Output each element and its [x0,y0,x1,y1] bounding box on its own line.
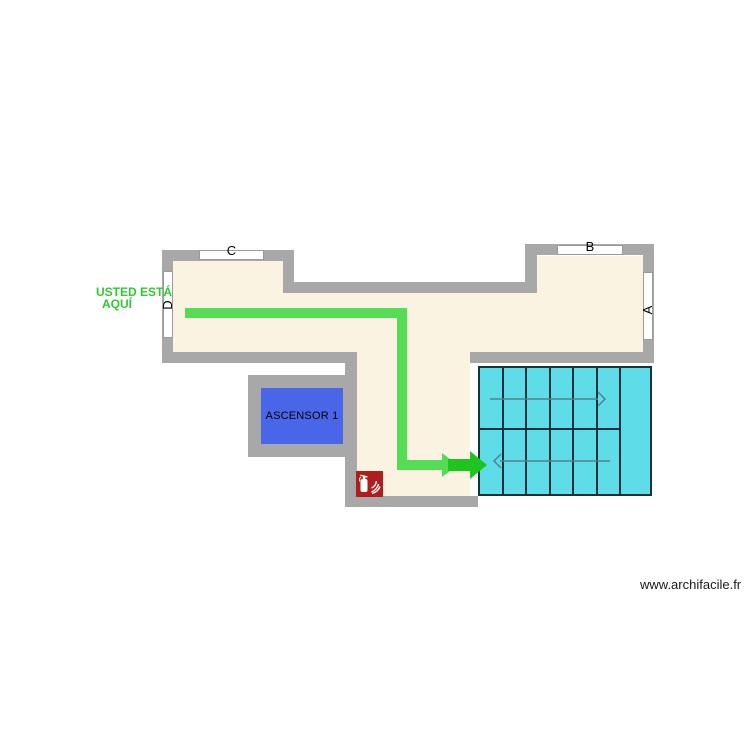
arrow-right-head-icon [598,392,605,406]
arrow-right-solid-head-icon [470,451,487,479]
floor-main-hall [173,293,643,352]
wall-corridor-bottom [345,496,478,507]
floor-left-room [173,261,283,293]
arrow-right-solid [448,459,471,471]
you-are-here-line2: AQUÍ [96,298,180,310]
floor-right-room [537,256,643,293]
wall-middle-top [283,282,537,293]
watermark-url: www.archifacile.fr [640,577,741,592]
window-a-label: A [641,302,655,318]
staircase [478,366,652,496]
elevator-cab: ASCENSOR 1 [261,388,343,444]
evacuation-floor-plan: C B D A ASCENSOR 1 [0,0,750,750]
arrow-left-head-icon [494,454,501,468]
you-are-here-label: USTED ESTÁ AQUÍ [96,286,180,310]
window-b-label: B [557,240,623,254]
route-segment-vertical [397,308,407,470]
stair-direction-arrows [480,368,650,494]
route-segment-exit [397,460,442,470]
fire-extinguisher-icon [356,471,383,497]
elevator-label: ASCENSOR 1 [266,410,339,422]
wall-hall-bottom-right [470,352,654,363]
route-segment-horizontal [185,308,407,318]
window-c-label: C [199,244,264,258]
wall-hall-bottom-left [162,352,357,363]
